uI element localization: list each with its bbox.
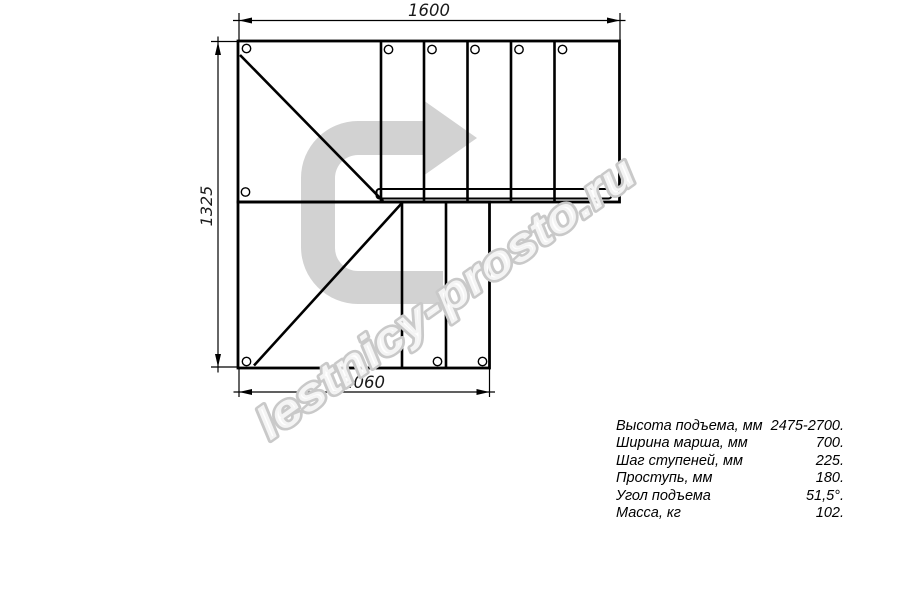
spec-value: 2475-2700. bbox=[771, 418, 844, 435]
spec-value: 225. bbox=[816, 453, 844, 470]
spec-value: 51,5°. bbox=[806, 488, 844, 505]
spec-value: 102. bbox=[816, 505, 844, 522]
spec-value: 700. bbox=[816, 435, 844, 452]
spec-label: Масса, кг bbox=[616, 505, 681, 522]
dimension-left: 1325 bbox=[197, 37, 237, 373]
spec-label: Проступь, мм bbox=[616, 470, 712, 487]
dim-left-label: 1325 bbox=[197, 186, 216, 227]
spec-label: Угол подъема bbox=[616, 488, 711, 505]
staircase-drawing-page: 1600 1325 1060 lestnicy-prosto.ru Высота… bbox=[0, 0, 900, 600]
specs-table: Высота подъема, мм 2475-2700. Ширина мар… bbox=[616, 418, 844, 522]
spec-row: Шаг ступеней, мм 225. bbox=[616, 453, 844, 470]
spec-row: Ширина марша, мм 700. bbox=[616, 435, 844, 452]
spec-label: Ширина марша, мм bbox=[616, 435, 748, 452]
spec-row: Угол подъема 51,5°. bbox=[616, 488, 844, 505]
dim-top-label: 1600 bbox=[408, 1, 450, 20]
spec-row: Высота подъема, мм 2475-2700. bbox=[616, 418, 844, 435]
spec-label: Шаг ступеней, мм bbox=[616, 453, 743, 470]
dimension-top: 1600 bbox=[233, 1, 626, 40]
spec-row: Проступь, мм 180. bbox=[616, 470, 844, 487]
spec-value: 180. bbox=[816, 470, 844, 487]
spec-row: Масса, кг 102. bbox=[616, 505, 844, 522]
spec-label: Высота подъема, мм bbox=[616, 418, 763, 435]
